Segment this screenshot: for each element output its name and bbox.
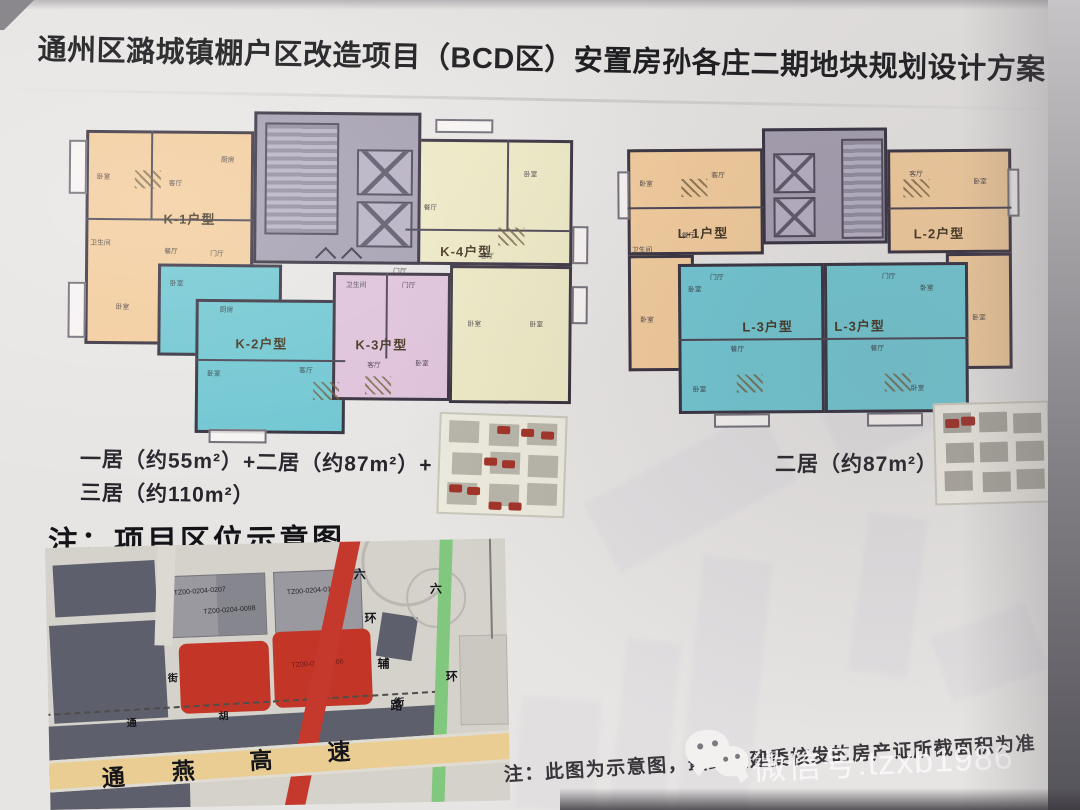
local-street — [154, 545, 175, 646]
balcony — [209, 429, 267, 444]
room-label-bedroom: 卧室 — [972, 313, 986, 322]
room-label-dining: 餐厅 — [682, 231, 696, 240]
room-label-living: 客厅 — [909, 169, 923, 178]
thumbnail-highlight-buildings — [497, 426, 510, 434]
map-parcel — [459, 634, 509, 725]
floor-plan-left: K-1户型 K-4户型 K-2户型 K-3户型 卧室 客厅 厨房 餐厅 卫生间 … — [67, 106, 594, 447]
furniture-hatch-icon — [903, 179, 929, 197]
room-label-living: 客厅 — [299, 366, 313, 375]
furniture-hatch-icon — [498, 227, 524, 245]
room-label-kitchen: 厨房 — [220, 305, 234, 314]
furniture-hatch-icon — [135, 170, 161, 188]
balcony — [867, 412, 923, 426]
room-label-bathroom: 卫生间 — [346, 280, 366, 290]
site-plan-thumbnail-right — [933, 400, 1052, 505]
map-parcel — [52, 560, 157, 618]
wechat-watermark-text: 微信号:tzxb1986 — [751, 729, 1014, 789]
furniture-hatch-icon — [737, 374, 763, 392]
ring-aux-road-char: 环 — [364, 609, 376, 626]
room-label-bedroom: 卧室 — [639, 179, 653, 188]
room-label-bedroom: 卧室 — [170, 279, 184, 288]
photo-top-edge — [0, 0, 1080, 10]
ghost-building — [583, 410, 797, 575]
room-label-dining: 餐厅 — [164, 247, 178, 256]
expressway-char: 通 — [101, 758, 126, 793]
ghost-building — [609, 638, 681, 810]
room-label-bedroom: 卧室 — [911, 383, 925, 392]
balcony — [67, 282, 85, 338]
photo-of-poster: 通州区潞城镇棚户区改造项目（BCD区）安置房孙各庄二期地块规划设计方案 — [0, 0, 1080, 810]
room-label-bedroom: 卧室 — [973, 177, 987, 186]
thumbnail-buildings — [449, 420, 480, 443]
left-plan-caption-line2: 三居（约110m²） — [80, 476, 255, 509]
stair-core — [253, 111, 421, 264]
photo-bottom-shadow — [560, 788, 1080, 810]
elevator-shaft-icon — [356, 201, 412, 247]
interchange-ramp — [406, 567, 467, 628]
photo-corner — [0, 0, 54, 30]
expressway-char: 高 — [249, 741, 274, 776]
poster-title: 通州区潞城镇棚户区改造项目（BCD区）安置房孙各庄二期地块规划设计方案 — [37, 26, 1046, 88]
furniture-hatch-icon — [313, 382, 339, 400]
balcony — [435, 119, 493, 134]
room-label-bedroom: 卧室 — [97, 172, 111, 181]
room-label-bedroom: 卧室 — [524, 170, 538, 179]
map-parcel — [376, 612, 418, 661]
room-label-bedroom: 卧室 — [640, 315, 654, 324]
location-map: TZ00-0204-0207 TZ00-0204-0098 TZ00-0204-… — [45, 538, 510, 810]
room-label-foyer: 门厅 — [882, 271, 896, 280]
room-label-living: 客厅 — [169, 179, 183, 188]
unit-label-l2: L-2户型 — [914, 223, 965, 242]
thumbnail-highlight-buildings — [945, 419, 959, 428]
room-label-bedroom: 卧室 — [415, 359, 429, 368]
elevator-shaft-icon — [773, 197, 815, 237]
stair-core — [762, 128, 888, 245]
room-label-bathroom: 卫生间 — [90, 238, 110, 248]
room-label-bedroom: 卧室 — [207, 369, 221, 378]
room-label-dining: 餐厅 — [424, 203, 438, 212]
balcony — [714, 413, 770, 427]
right-plan-caption: 二居（约87m²） — [775, 448, 938, 478]
elevator-shaft-icon — [357, 149, 413, 195]
room-label-foyer: 门厅 — [210, 249, 224, 258]
ring-aux-road-char: 路 — [390, 697, 402, 714]
room-label-bedroom: 卧室 — [116, 302, 130, 311]
street-name-char: 通 — [126, 714, 137, 730]
room-label-foyer: 门厅 — [710, 273, 724, 282]
wechat-icon — [684, 723, 758, 792]
room-label-living: 客厅 — [711, 171, 725, 180]
unit-label-k1: K-1户型 — [163, 209, 215, 228]
balcony — [572, 286, 588, 324]
room-label-bedroom: 卧室 — [530, 320, 544, 329]
ghost-building — [929, 603, 1049, 704]
unit-label-l3a: L-3户型 — [742, 316, 793, 335]
ring-road-char: 环 — [446, 667, 458, 684]
map-parcel: TZ00-0204-0207 TZ00-0204-0098 — [167, 573, 267, 639]
expressway-char: 速 — [326, 732, 351, 767]
unit-label-k2: K-2户型 — [235, 333, 287, 352]
expressway-char: 燕 — [171, 752, 196, 787]
room-label-bedroom: 卧室 — [468, 319, 482, 328]
room-label-bedroom: 卧室 — [693, 385, 707, 394]
room-label-bedroom: 卧室 — [920, 283, 934, 292]
ring-aux-road-char: 辅 — [377, 655, 389, 672]
ghost-building — [847, 512, 929, 679]
room-label-bedroom: 卧室 — [688, 285, 702, 294]
room-label-kitchen: 厨房 — [221, 155, 235, 164]
left-plan-caption-line1: 一居（约55m²）+二居（约87m²）+ — [80, 443, 433, 479]
furniture-hatch-icon — [365, 376, 391, 394]
room-label-living: 客厅 — [367, 360, 381, 369]
balcony — [617, 171, 629, 219]
unit-k4 — [449, 265, 572, 404]
site-plan-thumbnail-left — [436, 412, 567, 518]
room-label-living: 客厅 — [480, 251, 494, 260]
elevator-shaft-icon — [773, 153, 815, 193]
street-name-char: 街 — [168, 669, 178, 684]
room-label-dining: 餐厅 — [730, 345, 744, 354]
stair-flight-icon — [841, 139, 884, 239]
balcony — [572, 226, 588, 264]
map-boundary-line — [489, 539, 493, 639]
stair-flight-icon — [264, 122, 339, 235]
floor-plan-right: L-1户型 L-2户型 L-3户型 L-3户型 卧室 客厅 餐厅 卫生间 卧室 … — [617, 125, 1021, 430]
unit-k2 — [195, 299, 346, 434]
room-label-bathroom: 卫生间 — [632, 245, 652, 254]
furniture-hatch-icon — [681, 179, 707, 197]
balcony — [1007, 169, 1019, 217]
room-label-foyer: 门厅 — [402, 281, 416, 290]
balcony — [69, 140, 87, 194]
ring-road-char: 六 — [430, 580, 442, 597]
map-parcel-half — [216, 574, 266, 636]
unit-label-k3: K-3户型 — [355, 334, 407, 353]
room-label-dining: 餐厅 — [870, 344, 884, 353]
room-label-foyer: 门厅 — [393, 267, 407, 276]
street-name-char: 胡 — [218, 707, 229, 723]
unit-label-l3b: L-3户型 — [834, 316, 885, 335]
photo-right-edge — [1048, 0, 1080, 810]
ring-aux-road-char: 六 — [353, 565, 365, 582]
furniture-hatch-icon — [885, 373, 911, 391]
